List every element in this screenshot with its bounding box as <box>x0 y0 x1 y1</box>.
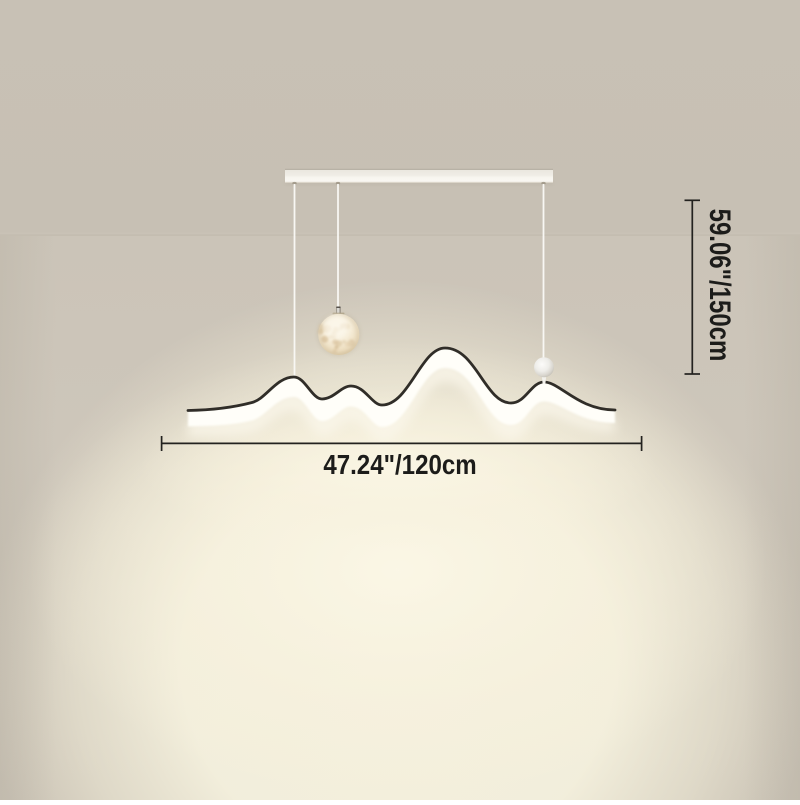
svg-text:47.24"/120cm: 47.24"/120cm <box>323 448 476 480</box>
svg-text:59.06"/150cm: 59.06"/150cm <box>703 209 737 362</box>
